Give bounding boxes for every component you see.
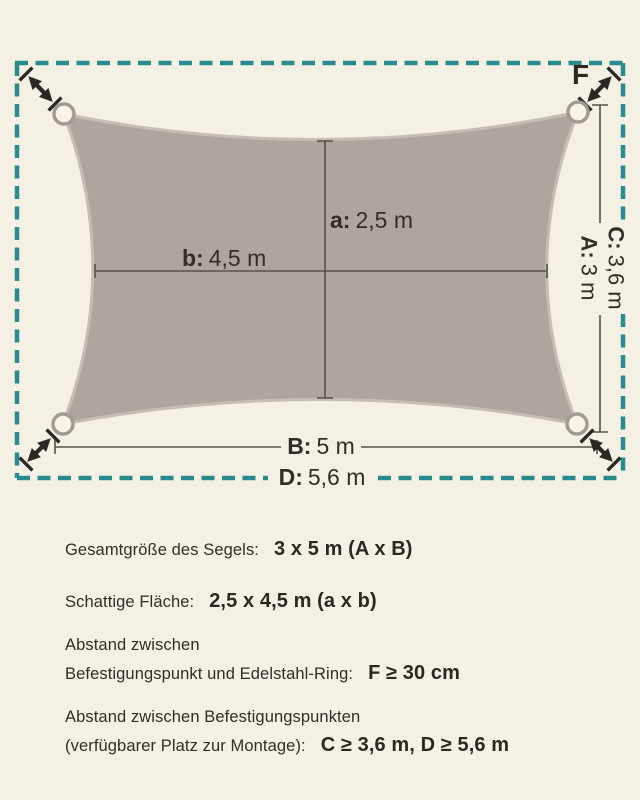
spec-mounting-distance-line1: Abstand zwischen Befestigungspunkten bbox=[65, 708, 360, 734]
dimension-label-B: B:5 m bbox=[287, 433, 355, 459]
steel-ring-top-right-icon bbox=[568, 102, 588, 122]
dimension-label-a: a:2,5 m bbox=[330, 207, 413, 233]
dimension-label-A-value: 3 m bbox=[577, 264, 602, 301]
dimension-label-D-prefix: D: bbox=[279, 464, 303, 490]
spec-ring-distance-line1: Abstand zwischen bbox=[65, 636, 200, 662]
dimension-label-B-prefix: B: bbox=[287, 433, 311, 459]
dimension-label-C: C:3,6 m bbox=[603, 226, 628, 309]
shade-sail-dimension-infographic: a:2,5 m b:4,5 m B:5 m D:5,6 m C:3,6 m A:… bbox=[0, 0, 640, 800]
dimension-label-D: D:5,6 m bbox=[279, 464, 366, 490]
spec-overall-size-value: 3 x 5 m (A x B) bbox=[274, 538, 413, 561]
dimension-label-C-prefix: C: bbox=[604, 226, 629, 249]
spec-ring-distance-value: F ≥ 30 cm bbox=[368, 662, 460, 685]
dimension-label-A: A:3 m bbox=[576, 236, 601, 301]
dimension-label-a-value: 2,5 m bbox=[355, 207, 413, 233]
spec-shaded-area-value: 2,5 x 4,5 m (a x b) bbox=[209, 590, 377, 613]
f-arrow-top-left bbox=[20, 68, 62, 111]
spec-shaded-area-label: Schattige Fläche: bbox=[65, 593, 194, 612]
dimension-label-A-prefix: A: bbox=[577, 236, 602, 259]
steel-ring-bottom-left-icon bbox=[53, 414, 73, 434]
dimension-label-b-prefix: b: bbox=[182, 245, 204, 271]
dimension-label-D-value: 5,6 m bbox=[308, 464, 366, 490]
specs-section: Gesamtgröße des Segels: 3 x 5 m (A x B) … bbox=[65, 538, 610, 768]
spec-mounting-distance-label2: (verfügbarer Platz zur Montage): bbox=[65, 737, 306, 756]
f-arrow-bottom-right bbox=[581, 430, 621, 471]
dimension-label-F: F bbox=[572, 61, 589, 89]
spec-ring-distance-label2: Befestigungspunkt und Edelstahl-Ring: bbox=[65, 665, 353, 684]
spec-ring-distance-label1: Abstand zwischen bbox=[65, 636, 200, 655]
shade-sail-shape bbox=[63, 112, 578, 424]
dimension-label-b: b:4,5 m bbox=[182, 245, 266, 271]
spec-overall-size: Gesamtgröße des Segels: 3 x 5 m (A x B) bbox=[65, 538, 413, 564]
spec-overall-size-label: Gesamtgröße des Segels: bbox=[65, 541, 259, 560]
spec-mounting-distance-label1: Abstand zwischen Befestigungspunkten bbox=[65, 708, 360, 727]
spec-mounting-distance-value: C ≥ 3,6 m, D ≥ 5,6 m bbox=[321, 734, 509, 757]
spec-mounting-distance-line2: (verfügbarer Platz zur Montage): C ≥ 3,6… bbox=[65, 734, 509, 760]
spec-ring-distance-line2: Befestigungspunkt und Edelstahl-Ring: F … bbox=[65, 662, 460, 688]
dimension-label-a-prefix: a: bbox=[330, 207, 350, 233]
steel-ring-top-left-icon bbox=[54, 104, 74, 124]
f-arrow-bottom-left bbox=[20, 430, 60, 471]
steel-ring-bottom-right-icon bbox=[567, 414, 587, 434]
dimension-label-b-value: 4,5 m bbox=[209, 245, 267, 271]
dimension-label-B-value: 5 m bbox=[316, 433, 354, 459]
dimension-label-C-value: 3,6 m bbox=[604, 255, 629, 310]
spec-shaded-area: Schattige Fläche: 2,5 x 4,5 m (a x b) bbox=[65, 590, 377, 616]
